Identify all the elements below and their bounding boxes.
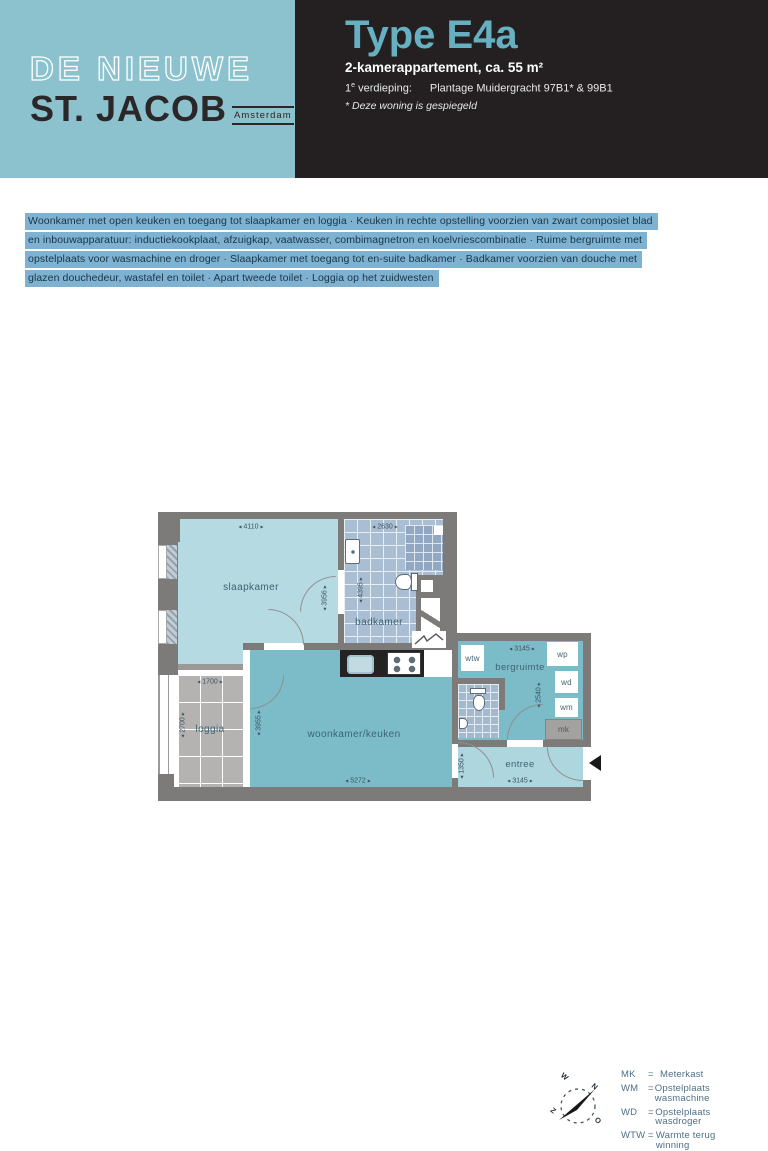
dim-slaapkamer-w: ◂4110▸ [238, 524, 263, 531]
legend-eq: = [648, 1084, 655, 1103]
dim-loggia-h: ◂2700▸ [180, 712, 187, 738]
wall-toilet-north [458, 678, 505, 684]
legend-abbr: WM [621, 1084, 648, 1103]
dim-badkamer-w: ◂2630▸ [372, 524, 398, 531]
dim-arrow-left-icon: ◂ [358, 600, 364, 603]
label-slaapkamer: slaapkamer [223, 583, 279, 593]
wall-right-north [443, 512, 457, 643]
logo-line1: DE NIEUWE [30, 50, 294, 88]
description-paragraph: Woonkamer met open keuken en toegang tot… [25, 213, 658, 289]
window-slaapkamer-1 [158, 545, 167, 579]
dim-value: 3145 [512, 778, 528, 785]
legend-abbr: WD [621, 1108, 648, 1127]
dim-value: 4110 [243, 524, 258, 531]
label-woonkamer: woonkamer/keuken [307, 730, 400, 740]
logo-city: Amsterdam [232, 106, 294, 125]
legend-item: MK=Meterkast [621, 1070, 719, 1080]
wd-box: wd [555, 671, 578, 693]
dim-value: 3955 [256, 715, 263, 731]
apartment-address: 1e verdieping:Plantage Muidergracht 97B1… [345, 82, 613, 95]
dim-arrow-right-icon: ▸ [532, 646, 535, 652]
compass-icon [549, 1072, 609, 1138]
dim-arrow-right-icon: ▸ [536, 682, 542, 685]
window-slaapkamer-2 [158, 610, 167, 644]
compass-rose: W N O Z [549, 1072, 609, 1138]
wall-corner-nw [158, 512, 180, 542]
mk-box: mk [545, 719, 582, 740]
wc-tank-icon [470, 688, 486, 694]
label-entree: entree [505, 760, 534, 770]
section-symbol [412, 631, 446, 648]
description-line: opstelplaats voor wasmachine en droger ·… [25, 251, 642, 268]
label-loggia: loggia [195, 725, 224, 735]
dim-arrow-left-icon: ◂ [256, 733, 262, 736]
dim-woonkamer-w: ◂5272▸ [345, 778, 371, 785]
dim-entree-h: ◂1350▸ [459, 753, 466, 779]
washbasin-icon [345, 539, 360, 564]
mirrored-note: * Deze woning is gespiegeld [345, 100, 613, 112]
wall-under-mk [545, 740, 583, 747]
dim-woonkamer-h: ◂3955▸ [256, 710, 263, 736]
legend-desc: Opstelplaats wasdroger [655, 1108, 718, 1127]
wm-box: wm [555, 698, 578, 717]
wc-basin-icon [459, 718, 468, 729]
dim-value: 2540 [536, 687, 543, 703]
dim-arrow-right-icon: ▸ [358, 577, 364, 580]
wall-top [158, 512, 457, 519]
dim-arrow-right-icon: ▸ [530, 778, 533, 784]
legend-list: MK=Meterkast WM=Opstelplaats wasmachine … [621, 1070, 719, 1151]
door-opening-badkamer [338, 570, 344, 614]
wall-toilet-east [499, 684, 505, 710]
room-slaapkamer [165, 519, 338, 643]
legend-desc: Warmte terug winning [656, 1131, 719, 1150]
dim-bergruimte-w: ◂3145▸ [509, 646, 535, 653]
dim-arrow-right-icon: ▸ [256, 710, 262, 713]
dim-value: 1700 [202, 679, 218, 686]
legend-desc: Opstelplaats wasmachine [655, 1084, 719, 1103]
dim-bergruimte-h: ◂2540▸ [536, 682, 543, 708]
legend-eq: = [648, 1070, 660, 1080]
dim-arrow-left-icon: ◂ [322, 608, 328, 611]
dim-arrow-right-icon: ▸ [180, 712, 186, 715]
dim-arrow-left-icon: ◂ [509, 646, 512, 652]
dim-arrow-left-icon: ◂ [372, 524, 375, 530]
dim-arrow-left-icon: ◂ [197, 679, 200, 685]
dim-value: 2630 [377, 524, 393, 531]
dim-slaapkamer-h: ◂3956▸ [322, 585, 329, 611]
label-badkamer: badkamer [355, 618, 403, 628]
dim-entree-w: ◂3145▸ [507, 778, 533, 785]
dim-arrow-right-icon: ▸ [368, 778, 371, 784]
dim-arrow-left-icon: ◂ [536, 705, 542, 708]
brand-logo: DE NIEUWE ST. JACOB Amsterdam [30, 50, 294, 126]
dim-value: 2700 [180, 717, 187, 733]
cooktop-icon [387, 652, 421, 675]
wall-bergruimte-north [452, 633, 591, 641]
dim-value: 1350 [459, 758, 466, 774]
dim-arrow-right-icon: ▸ [220, 679, 223, 685]
door-opening-bergruimte [507, 740, 543, 747]
floor-word: verdieping: [355, 83, 412, 95]
facade-sill [178, 664, 243, 670]
shaft-vent [421, 580, 433, 592]
legend-item: WTW=Warmte terug winning [621, 1131, 719, 1150]
legend-abbr: WTW [621, 1131, 648, 1150]
toilet-tank-icon [411, 573, 418, 591]
dim-arrow-right-icon: ▸ [261, 524, 264, 530]
dim-arrow-left-icon: ◂ [459, 776, 465, 779]
legend-eq: = [648, 1131, 656, 1150]
description-line: Woonkamer met open keuken en toegang tot… [25, 213, 658, 230]
legend-item: WM=Opstelplaats wasmachine [621, 1084, 719, 1103]
wm-label: wm [560, 703, 573, 712]
description-line: glazen douchedeur, wastafel en toilet · … [25, 270, 439, 287]
dim-arrow-right-icon: ▸ [322, 585, 328, 588]
dim-value: 5272 [350, 778, 366, 785]
zigzag-icon [412, 631, 446, 648]
dim-value: 3145 [514, 646, 530, 653]
page-title: Type E4a [345, 14, 613, 56]
loggia-railing [158, 675, 169, 787]
dim-badkamer-h: ◂4395▸ [358, 577, 365, 603]
dim-arrow-left-icon: ◂ [238, 524, 241, 530]
floorplan: wtw wp wd wm mk slaapkamer badkamer woon… [158, 512, 600, 808]
legend-item: WD=Opstelplaats wasdroger [621, 1108, 719, 1127]
shower-head-icon [434, 526, 443, 535]
address-text: Plantage Muidergracht 97B1* & 99B1 [430, 83, 613, 95]
wd-label: wd [561, 678, 572, 687]
wc-bowl-icon [473, 695, 485, 711]
apartment-info: Type E4a 2-kamerappartement, ca. 55 m² 1… [345, 14, 613, 112]
dim-loggia-w: ◂1700▸ [197, 679, 223, 686]
dim-value: 4395 [358, 582, 365, 598]
dim-arrow-left-icon: ◂ [345, 778, 348, 784]
legend-abbr: MK [621, 1070, 648, 1080]
brochure-page: DE NIEUWE ST. JACOB Amsterdam Type E4a 2… [0, 0, 768, 1151]
label-bergruimte: bergruimte [495, 663, 544, 673]
wtw-label: wtw [465, 654, 479, 663]
window-frame-hatch [167, 610, 177, 644]
kitchen-sink-icon [347, 655, 374, 674]
wp-box: wp [547, 642, 578, 666]
logo-line2: ST. JACOB [30, 92, 227, 126]
mk-label: mk [558, 725, 569, 734]
kitchen-cabinet [424, 650, 452, 677]
dim-value: 3956 [322, 590, 329, 606]
toilet-bowl-icon [395, 574, 412, 590]
wp-label: wp [557, 650, 568, 659]
wtw-box: wtw [461, 645, 484, 671]
dim-arrow-left-icon: ◂ [180, 735, 186, 738]
dim-arrow-right-icon: ▸ [459, 753, 465, 756]
description-line: en inbouwapparatuur: inductiekookplaat, … [25, 232, 647, 249]
page-header: DE NIEUWE ST. JACOB Amsterdam Type E4a 2… [0, 0, 768, 178]
legend-desc: Meterkast [660, 1070, 704, 1080]
wall-bottom [158, 787, 591, 801]
dim-arrow-left-icon: ◂ [507, 778, 510, 784]
dim-arrow-right-icon: ▸ [395, 524, 398, 530]
entrance-arrow-icon [589, 755, 601, 771]
apartment-subtitle: 2-kamerappartement, ca. 55 m² [345, 60, 613, 75]
window-frame-hatch [167, 545, 177, 579]
